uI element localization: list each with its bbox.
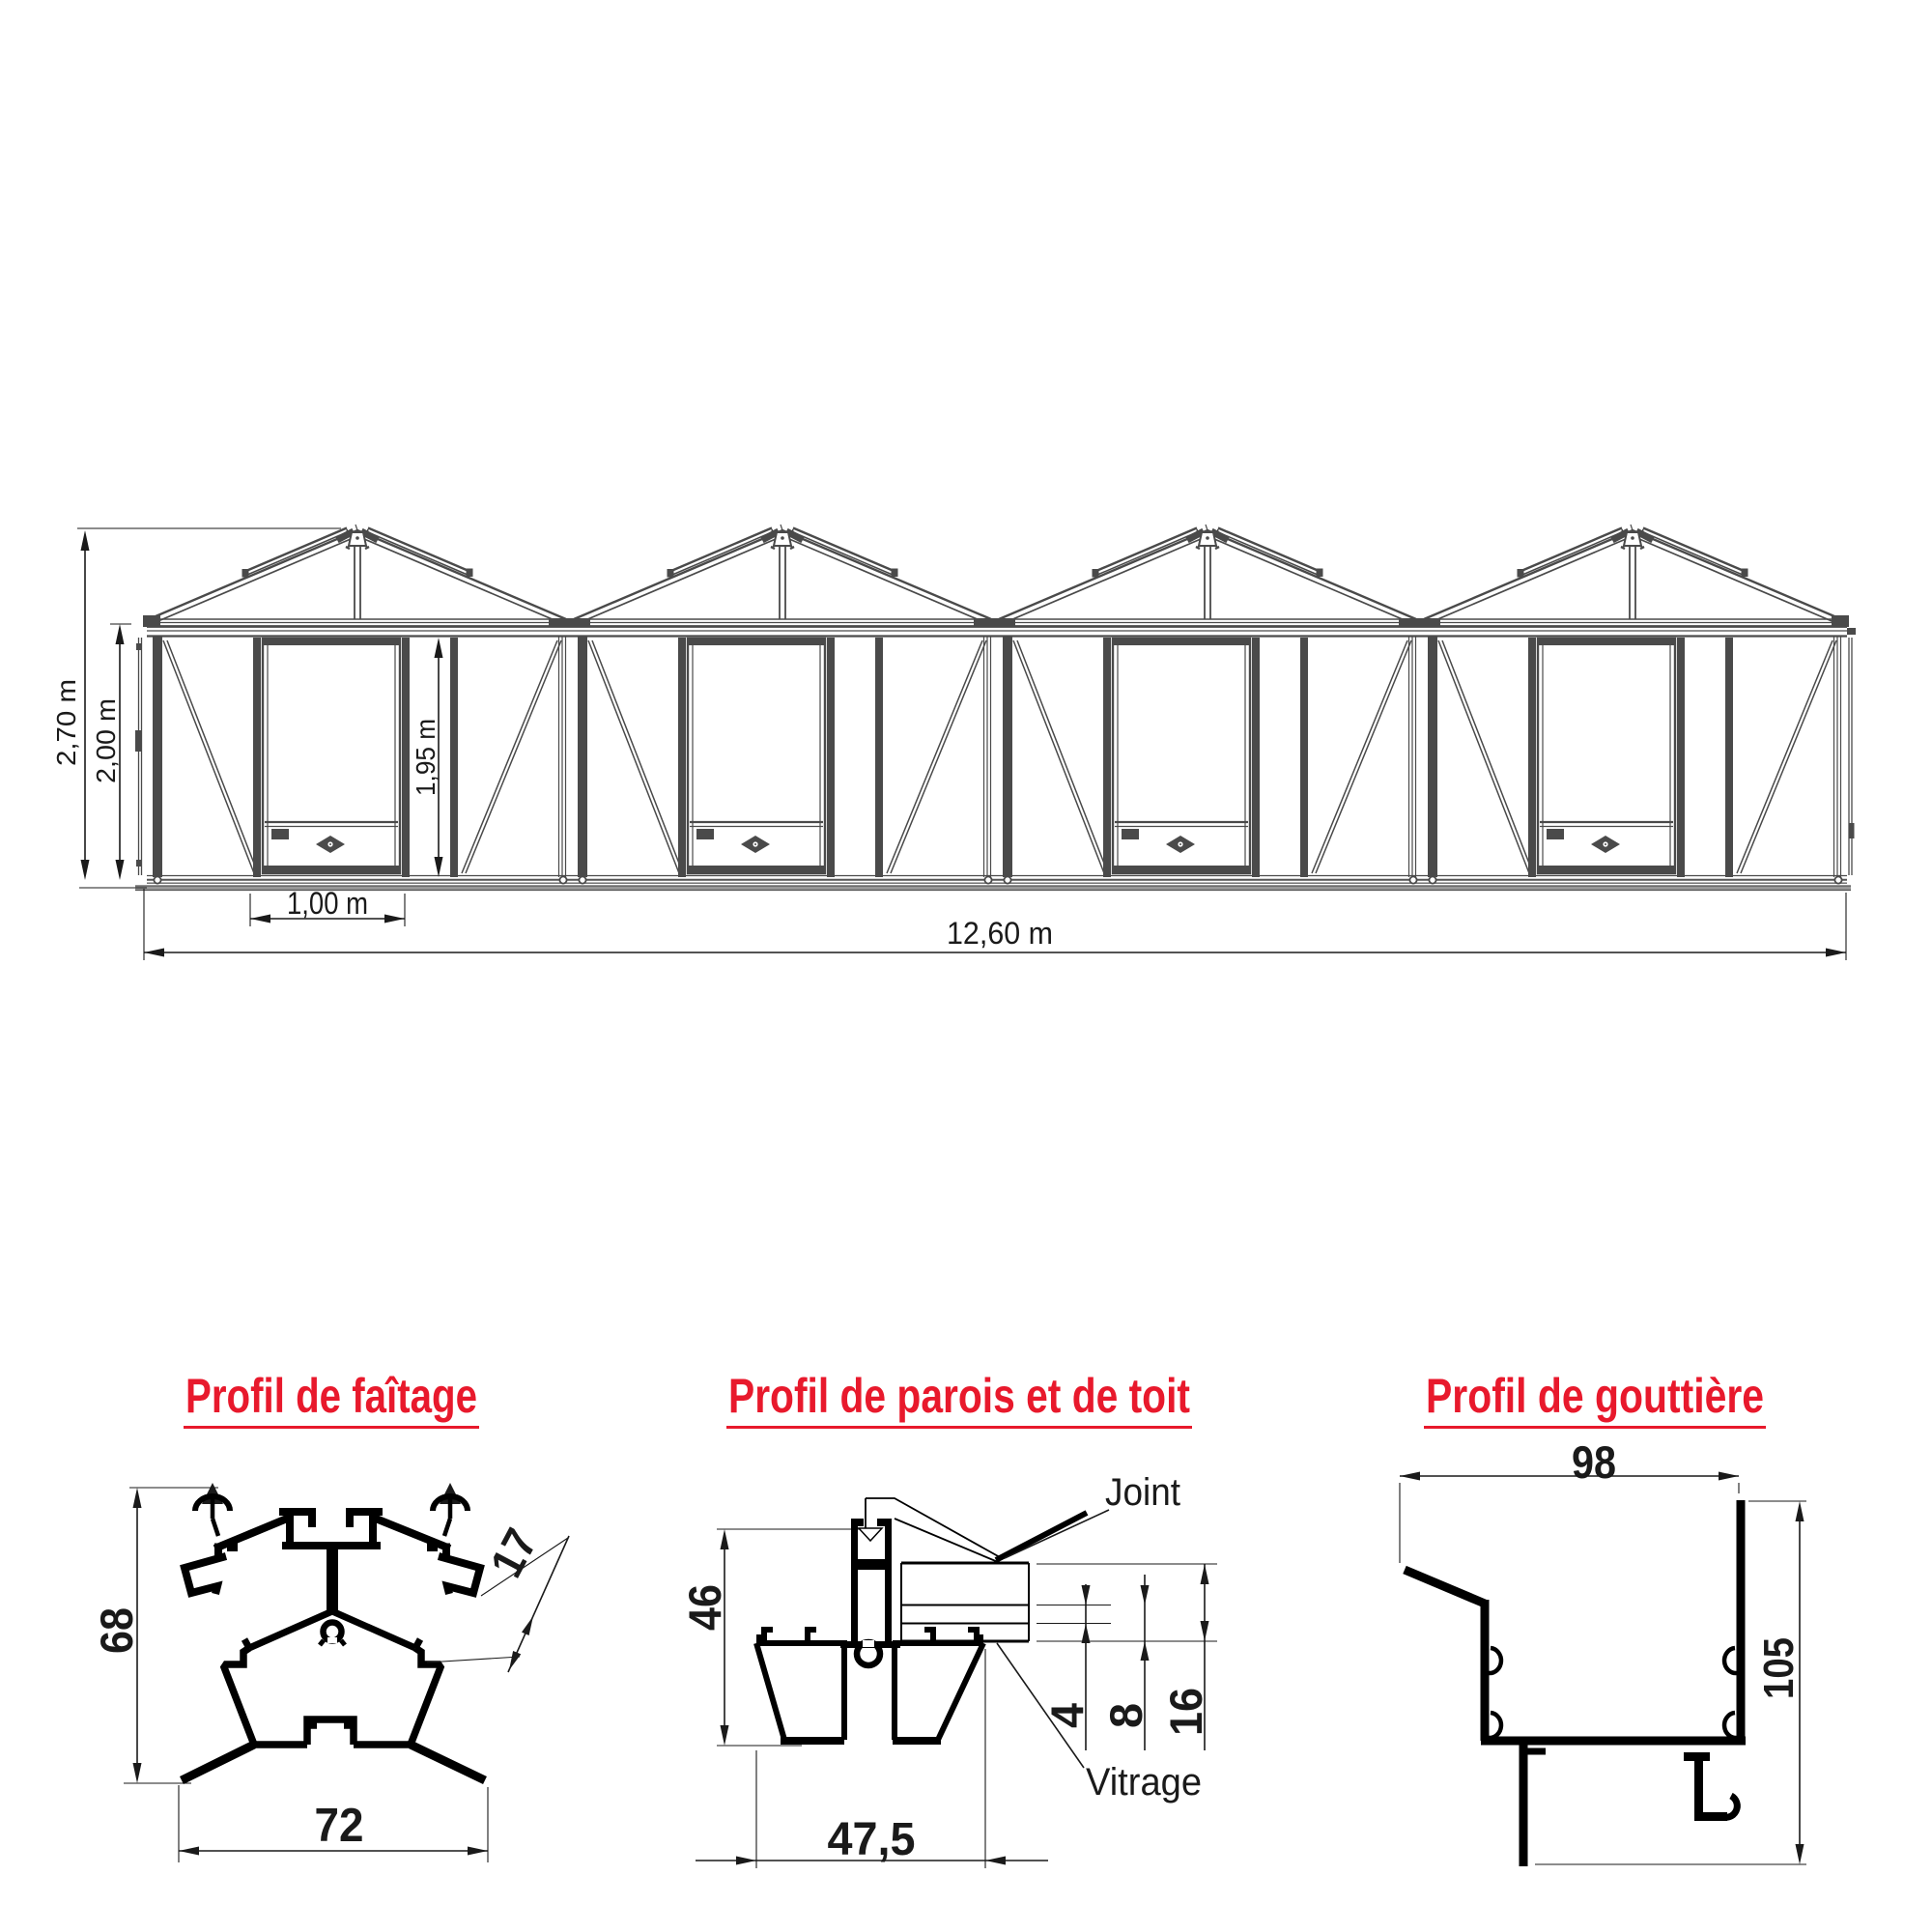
svg-text:12,60 m: 12,60 m: [947, 916, 1053, 951]
svg-text:46: 46: [679, 1584, 730, 1631]
svg-text:47,5: 47,5: [828, 1814, 916, 1865]
svg-text:8: 8: [1100, 1703, 1151, 1728]
svg-text:1,00 m: 1,00 m: [287, 886, 368, 921]
svg-text:72: 72: [315, 1800, 364, 1852]
svg-text:98: 98: [1572, 1436, 1616, 1488]
svg-text:68: 68: [91, 1607, 142, 1654]
svg-text:1,95 m: 1,95 m: [411, 719, 440, 796]
svg-text:Profil de gouttière: Profil de gouttière: [1426, 1369, 1764, 1423]
svg-text:105: 105: [1755, 1637, 1803, 1699]
svg-text:Vitrage: Vitrage: [1086, 1761, 1202, 1804]
svg-text:Profil de parois et de toit: Profil de parois et de toit: [728, 1369, 1190, 1423]
svg-text:Joint: Joint: [1105, 1471, 1180, 1514]
svg-text:2,00 m: 2,00 m: [91, 698, 121, 783]
svg-text:2,70 m: 2,70 m: [51, 679, 81, 766]
svg-text:Profil de faîtage: Profil de faîtage: [185, 1369, 477, 1423]
svg-text:16: 16: [1160, 1688, 1211, 1736]
svg-text:4: 4: [1041, 1703, 1093, 1728]
